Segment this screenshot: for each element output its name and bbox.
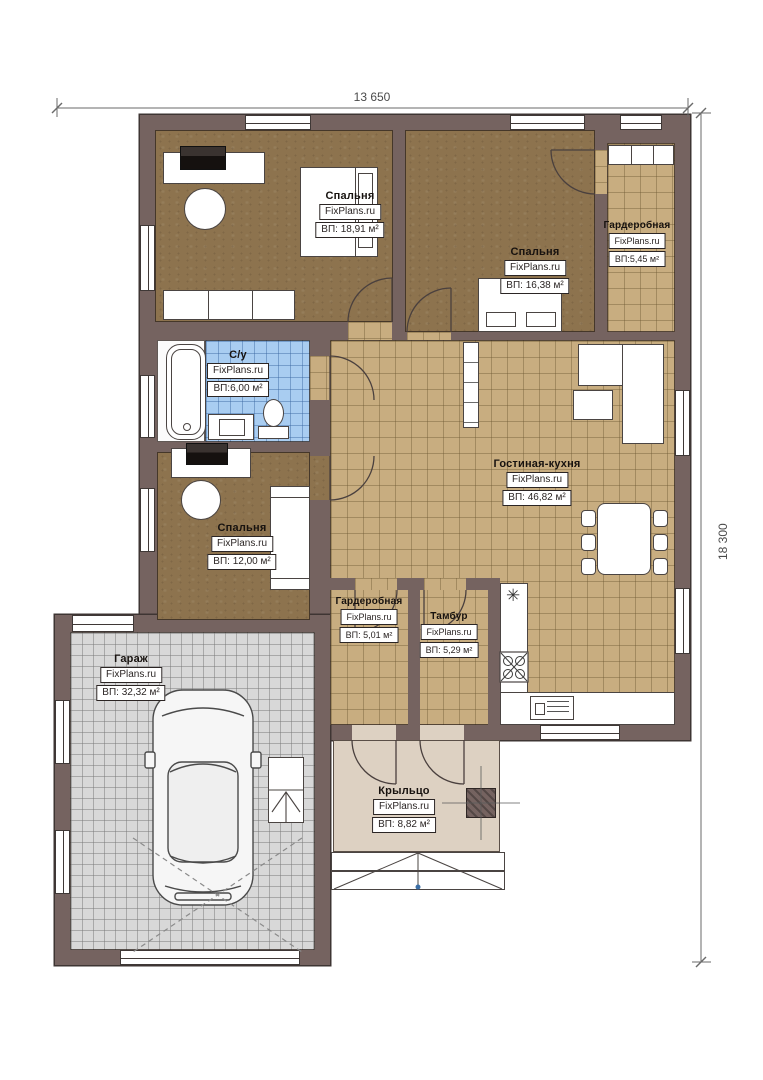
porch-step [331, 852, 505, 871]
shelf-divider [631, 146, 632, 164]
cabinet-divider [252, 291, 253, 319]
room-label-wardrobe-1: Гардеробная FixPlans.ru ВП:5,45 м² [604, 220, 671, 267]
watermark: FixPlans.ru [504, 260, 566, 276]
floor-plan: ✳ [0, 0, 763, 1080]
room-name: Гараж [114, 653, 148, 665]
window [72, 615, 134, 632]
window [510, 115, 585, 130]
dimension-line-right [692, 108, 711, 967]
window [675, 390, 690, 456]
room-area: ВП:6,00 м² [207, 381, 268, 397]
wardrobe-2-right-wall [408, 590, 420, 725]
pillow [486, 312, 516, 327]
living-porch-door-gap [352, 725, 396, 740]
bathtub [166, 344, 206, 440]
room-name: С/у [229, 349, 247, 361]
dimension-height-label: 18 300 [716, 523, 730, 560]
shelf-divider [653, 146, 654, 164]
room-label-bathroom: С/у FixPlans.ru ВП:6,00 м² [207, 349, 269, 397]
window [620, 115, 662, 130]
watermark: FixPlans.ru [340, 609, 397, 625]
dining-chair [653, 534, 668, 551]
room-area: ВП:5,45 м² [609, 251, 665, 267]
room-name: Гардеробная [604, 220, 671, 231]
watermark: FixPlans.ru [211, 536, 273, 552]
wardrobe-cabinet [163, 290, 295, 320]
dining-chair [653, 558, 668, 575]
dining-chair [581, 510, 596, 527]
window [140, 225, 155, 291]
room-name: Гардеробная [336, 596, 403, 607]
room-label-tambur: Тамбур FixPlans.ru ВП: 5,29 м² [420, 611, 479, 658]
room-name: Гостиная-кухня [493, 458, 580, 470]
couch-armrest [270, 578, 310, 590]
room-area: ВП: 18,91 м² [315, 222, 384, 238]
watermark: FixPlans.ru [420, 624, 477, 640]
pillow [526, 312, 556, 327]
window [540, 725, 620, 740]
sink-icon: ✳ [506, 586, 520, 606]
room-area: ВП: 12,00 м² [207, 554, 276, 570]
room-label-wardrobe-2: Гардеробная FixPlans.ru ВП: 5,01 м² [336, 596, 403, 643]
tv-stand [463, 342, 479, 428]
room-area: ВП: 5,01 м² [340, 627, 399, 643]
room-area: ВП: 46,82 м² [502, 490, 571, 506]
room-area: ВП: 5,29 м² [420, 642, 479, 658]
wardrobe-1-door-gap [595, 150, 607, 194]
toilet-tank [258, 426, 289, 439]
room-area: ВП: 16,38 м² [500, 278, 569, 294]
bathroom-door-gap [310, 356, 330, 400]
window [140, 488, 155, 552]
room-label-living: Гостиная-кухня FixPlans.ru ВП: 46,82 м² [493, 458, 580, 506]
exterior-stairs [268, 757, 304, 823]
toilet-bowl [263, 399, 284, 427]
room-name: Спальня [218, 522, 267, 534]
kitchen-counter [500, 692, 675, 725]
bedroom-3-door-gap [310, 456, 330, 500]
dining-chair [653, 510, 668, 527]
window [55, 830, 70, 894]
room-label-bedroom-1: Спальня FixPlans.ru ВП: 18,91 м² [315, 190, 384, 238]
porch-step [331, 871, 505, 890]
oven [530, 696, 574, 720]
printer [180, 146, 226, 170]
shelf-unit [608, 145, 674, 165]
watermark: FixPlans.ru [608, 233, 665, 249]
watermark: FixPlans.ru [100, 667, 162, 683]
watermark: FixPlans.ru [319, 204, 381, 220]
watermark: FixPlans.ru [373, 799, 435, 815]
room-name: Спальня [511, 246, 560, 258]
wardrobe-2-door-gap [355, 578, 397, 590]
window [245, 115, 311, 130]
room-name: Тамбур [430, 611, 467, 622]
watermark: FixPlans.ru [207, 363, 269, 379]
window [140, 375, 155, 438]
oven-dial [535, 703, 545, 715]
dimension-width-label: 13 650 [354, 90, 391, 104]
dining-chair [581, 558, 596, 575]
couch-armrest [270, 486, 310, 498]
garage-door [120, 950, 300, 965]
room-name: Крыльцо [378, 785, 429, 797]
window [55, 700, 70, 764]
room-area: ВП: 8,82 м² [372, 817, 436, 833]
room-label-porch: Крыльцо FixPlans.ru ВП: 8,82 м² [372, 785, 436, 833]
room-name: Спальня [326, 190, 375, 202]
dining-chair [581, 534, 596, 551]
room-label-garage: Гараж FixPlans.ru ВП: 32,32 м² [96, 653, 165, 701]
bedroom-2-door-gap [407, 332, 451, 340]
window [675, 588, 690, 654]
porch-column [466, 788, 496, 818]
room-label-bedroom-2: Спальня FixPlans.ru ВП: 16,38 м² [500, 246, 569, 294]
cabinet-divider [208, 291, 209, 319]
corner-sofa [622, 344, 664, 444]
watermark: FixPlans.ru [506, 472, 568, 488]
bedroom-1-door-gap [348, 322, 392, 340]
room-area: ВП: 32,32 м² [96, 685, 165, 701]
dining-table [597, 503, 651, 575]
room-label-bedroom-3: Спальня FixPlans.ru ВП: 12,00 м² [207, 522, 276, 570]
basin [219, 419, 245, 436]
tambur-door-gap [424, 578, 466, 590]
office-chair [184, 188, 226, 230]
oven-grill [547, 701, 569, 715]
office-chair [181, 480, 221, 520]
drain [183, 423, 191, 431]
tambur-porch-door-gap [420, 725, 464, 740]
vanity-sink [208, 414, 254, 440]
coffee-table [573, 390, 613, 420]
tambur-right-wall [488, 590, 500, 725]
printer [186, 443, 228, 465]
